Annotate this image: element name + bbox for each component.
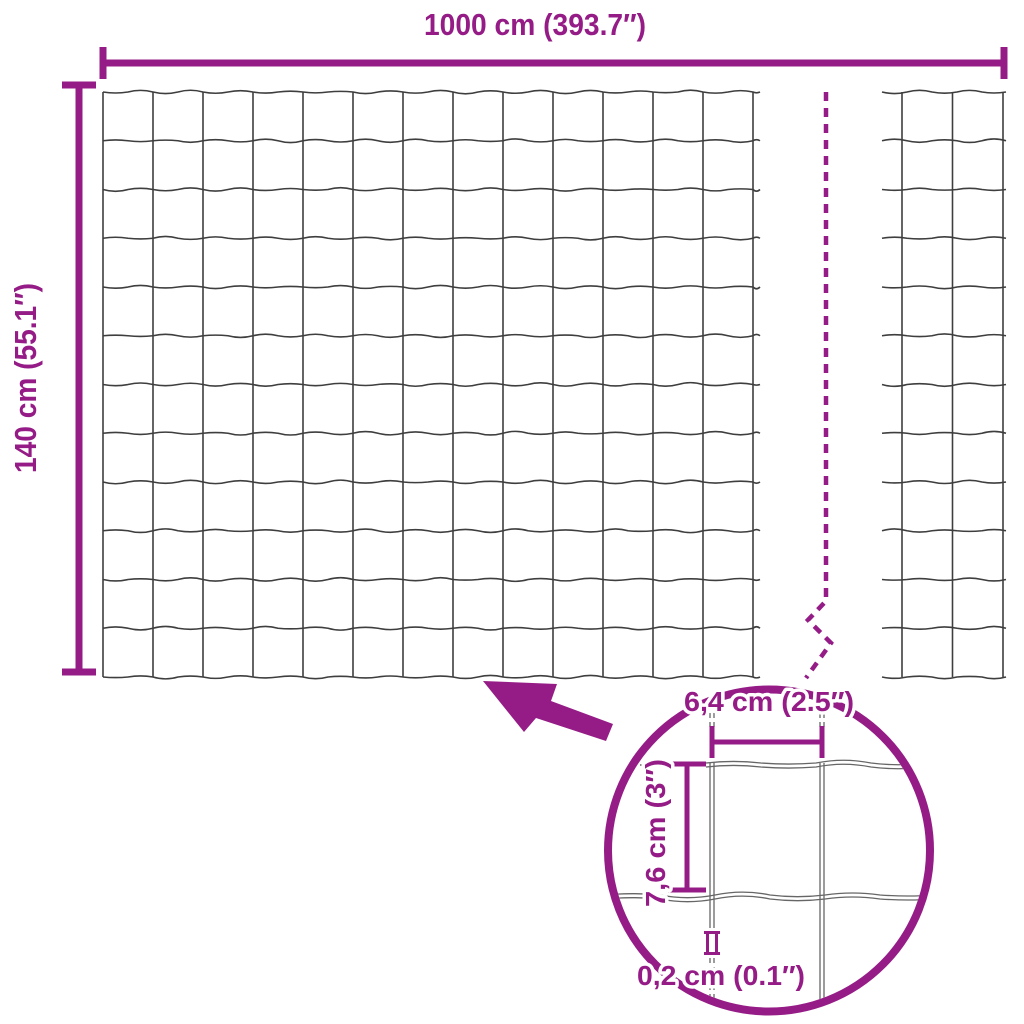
mesh-horizontal-wire <box>882 626 1006 629</box>
mesh-break-dashed-line <box>806 92 831 678</box>
cell-height-label: 7,6 cm (3″) <box>640 759 671 907</box>
height-dimension: 140 cm (55.1″) <box>8 85 96 672</box>
width-dimension-label: 1000 cm (393.7″) <box>424 7 646 42</box>
cell-height-dimension: 7,6 cm (3″) <box>640 759 706 907</box>
wire-thickness-dimension: 0,2 cm (0.1″) <box>637 931 805 991</box>
diagram-canvas: 1000 cm (393.7″) 140 cm (55.1″) 6,4 cm (… <box>0 0 1024 1024</box>
height-dimension-label: 140 cm (55.1″) <box>8 283 43 473</box>
mesh-main-panel <box>103 90 760 679</box>
mesh-horizontal-wire <box>103 139 760 143</box>
mesh-horizontal-wire <box>103 431 760 435</box>
mesh-horizontal-wire <box>882 237 1006 240</box>
detail-zoom-circle: 6,4 cm (2.5″) 7,6 cm (3″) 0,2 cm (0.1″) <box>600 686 940 1012</box>
mesh-horizontal-wire <box>103 236 760 239</box>
mesh-horizontal-wire <box>882 529 1006 532</box>
mesh-horizontal-wire <box>882 676 1006 679</box>
mesh-horizontal-wire <box>882 188 1006 190</box>
mesh-right-strip <box>882 90 1006 678</box>
mesh-horizontal-wire <box>882 90 1006 93</box>
mesh-horizontal-wire <box>882 334 1006 337</box>
wire-thickness-marker <box>704 931 720 955</box>
mesh-horizontal-wire <box>103 675 760 678</box>
mesh-horizontal-wire <box>882 139 1006 143</box>
mesh-horizontal-wire <box>882 286 1006 289</box>
mesh-horizontal-wire <box>882 480 1006 483</box>
mesh-horizontal-wire <box>882 431 1006 434</box>
mesh-horizontal-wire <box>882 578 1006 581</box>
zoom-arrow <box>483 681 613 741</box>
mesh-horizontal-wire <box>103 90 760 94</box>
fence-dimensions-diagram: 1000 cm (393.7″) 140 cm (55.1″) 6,4 cm (… <box>0 0 1024 1024</box>
mesh-horizontal-wire <box>103 480 760 484</box>
mesh-horizontal-wire <box>103 578 760 582</box>
cell-width-label: 6,4 cm (2.5″) <box>684 686 854 717</box>
mesh-horizontal-wire <box>882 383 1006 386</box>
wire-thickness-label: 0,2 cm (0.1″) <box>637 960 805 991</box>
mesh-horizontal-wire <box>103 285 760 288</box>
mesh-horizontal-wire <box>103 383 760 387</box>
mesh-horizontal-wire <box>103 529 760 533</box>
mesh-horizontal-wire <box>103 626 760 630</box>
width-dimension: 1000 cm (393.7″) <box>103 7 1004 79</box>
mesh-horizontal-wire <box>103 188 760 192</box>
mesh-horizontal-wire <box>103 334 760 337</box>
